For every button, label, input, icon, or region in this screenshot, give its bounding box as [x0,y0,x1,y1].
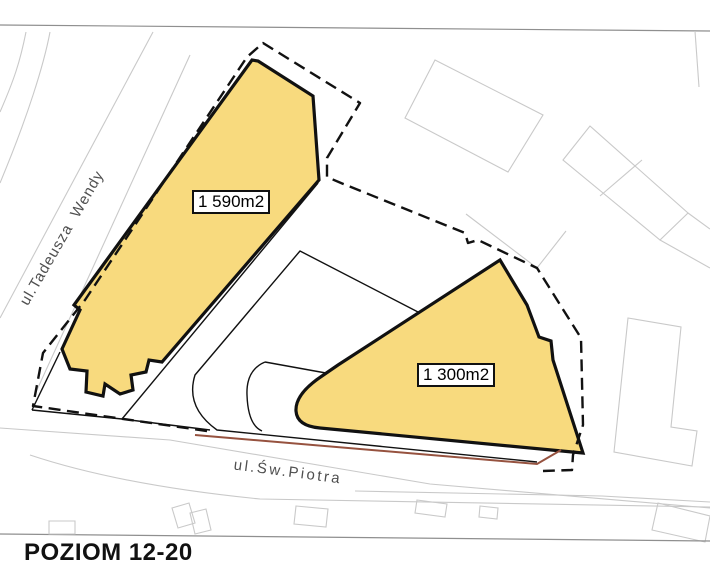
context-building-outline [660,213,710,268]
street-edge-line [0,32,50,183]
context-building-outline [652,503,710,542]
top-right-tick-line [695,31,699,87]
tower-1-area-label: 1 590m2 [192,190,270,214]
tower-2-footprint [296,260,583,453]
context-small-building [172,503,195,528]
towers-layer [62,60,583,453]
context-building-divider [600,160,642,196]
context-small-building [49,521,75,534]
context-small-building [479,506,498,519]
parcel-edge-line [32,352,60,410]
podium-inner-outline [247,362,265,431]
top-frame-line [0,25,710,31]
site-plan: ul.Tadeusza Wendy ul.Św.Piotra 1 590m2 1… [0,0,710,575]
level-title: POZIOM 12-20 [24,539,193,567]
context-building-outline [563,126,688,240]
context-building-outline [614,318,697,466]
site-plan-canvas [0,0,710,575]
context-small-building [294,506,328,527]
context-small-building [190,509,211,534]
street-edge-line [0,32,26,112]
context-building-outline [405,60,543,172]
tower-2-area-label: 1 300m2 [417,363,495,387]
